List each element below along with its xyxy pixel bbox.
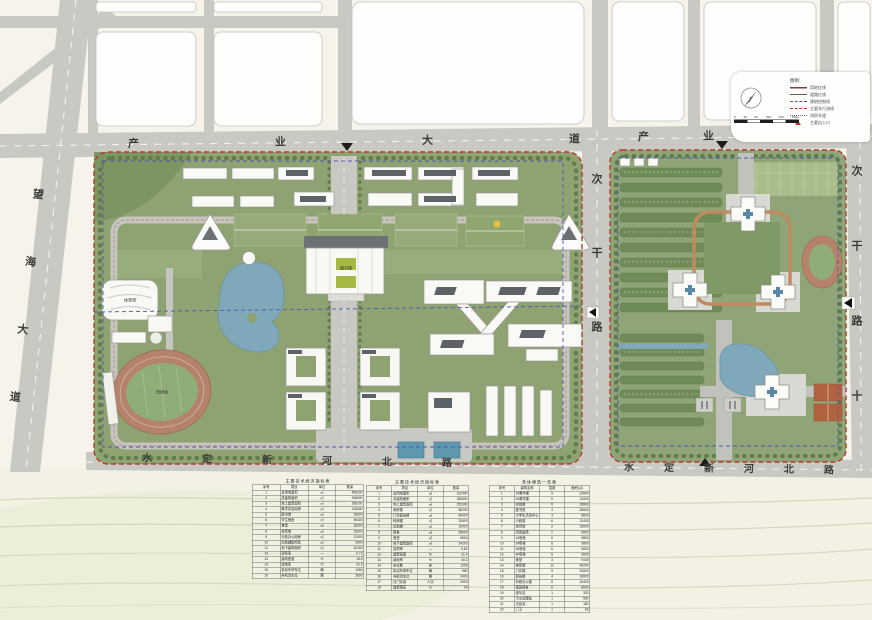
indicator-table-2: 主要技术经济指标表 序号项目单位数量1总用地面积㎡3124002总建筑面积㎡28… — [366, 479, 469, 591]
legend-item: 主要车行流线 — [790, 105, 865, 112]
lake-pavilion — [243, 252, 256, 265]
legend-item: 道路红线 — [790, 91, 865, 98]
top-left-street — [0, 16, 340, 28]
compass-icon — [738, 85, 764, 111]
legend-title: 图例: — [790, 77, 800, 84]
label-stadium: 田径场 — [156, 389, 168, 395]
red-dash-swatch — [790, 108, 807, 109]
central-quad — [704, 222, 780, 294]
stream — [618, 344, 708, 349]
road-label-secondary-road-mid: 次干路 — [588, 173, 604, 395]
small-track — [802, 236, 842, 288]
legend-item: 用地红线 — [790, 84, 865, 91]
label-gymnasium: 体育馆 — [124, 297, 136, 303]
yellow-pavilion — [494, 221, 501, 228]
right-campus — [610, 150, 846, 462]
red-line-swatch — [790, 87, 807, 89]
lawn-grid — [744, 162, 838, 196]
site-plan-page: 产业大道 产业大道 望海大道 次干路 次干路十 水定新河北路 水定新河北路 图书… — [0, 0, 872, 620]
legend-item: 建筑控制线 — [790, 98, 865, 105]
label-library: 图书馆 — [340, 265, 352, 271]
dome — [150, 332, 162, 344]
legend-card: 图例: 用地红线 道路红线 建筑控制线 主要车行流线 消防车道 — [731, 72, 870, 142]
building-list-table: 单体建筑一览表 序号建筑名称层数面积(㎡)11#教学楼51260022#教学楼5… — [489, 479, 590, 613]
left-campus — [94, 152, 589, 464]
service-buildings — [620, 158, 658, 166]
indicator-table-1: 主要技术经济指标表 序号项目单位数量1总用地面积㎡4862002总建筑面积㎡39… — [252, 478, 364, 579]
blue-dash-swatch — [790, 101, 807, 102]
scale-bar: 0 25 50 100 150 200m — [734, 116, 799, 123]
legend-item: 主要出入口 — [790, 119, 865, 126]
legend-item: 消防车道 — [790, 112, 865, 119]
road-line-swatch — [790, 94, 807, 95]
canteen-and-se-dorms — [428, 386, 552, 436]
legend-list: 用地红线 道路红线 建筑控制线 主要车行流线 消防车道 主要出入口 — [790, 84, 865, 126]
road-label-secondary-road-east: 次干路十 — [848, 165, 864, 465]
